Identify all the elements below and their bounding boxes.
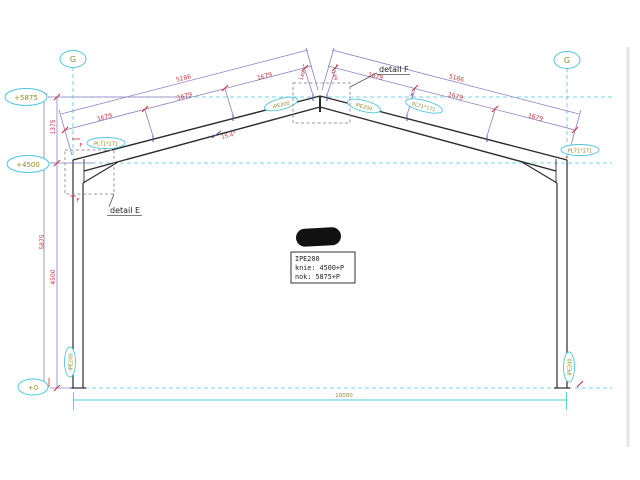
redaction-blob (296, 227, 342, 247)
grid-marker-left: G (70, 55, 76, 64)
ext-left-apex (306, 48, 318, 90)
left-column (70, 159, 118, 388)
column-label-right-group: IPE200 (564, 352, 575, 382)
info-box: IPE200 knie: 4500+P nok: 5875+P (291, 252, 355, 283)
ext-purlin (487, 110, 495, 136)
dim-rafter-segment: 1679 (527, 112, 544, 123)
ext-purlin (225, 89, 233, 115)
dim-apex-segment: 149 (299, 70, 308, 81)
apex-plate-label-group: PL71*171 (404, 96, 444, 116)
left-haunch (83, 162, 118, 183)
portal-frame-elevation: 5875 1375 4500 5186 5186 1679 1679 1679 … (0, 0, 640, 480)
level-knee: +4500 (16, 161, 40, 169)
grid-markers: G G (60, 51, 580, 69)
span-dimension: 10000 (74, 392, 567, 410)
dim-knee-height: 4500 (50, 269, 57, 284)
detail-f-label: detail F (379, 65, 409, 74)
detail-f-box (293, 83, 350, 123)
right-haunch (522, 162, 557, 183)
dim-upper-height: 1375 (50, 119, 57, 134)
dim-rafter-segment: 1679 (447, 91, 464, 102)
detail-e-box (65, 150, 114, 194)
tick (577, 381, 583, 387)
dim-rafter-segment: 1679 (96, 112, 113, 123)
right-rafter-bottom-flange (320, 107, 556, 171)
level-base: +0 (28, 384, 38, 392)
knee-plate-label-left: PL71*171 (94, 142, 118, 148)
right-column (522, 159, 570, 388)
column-label-left-group: IPE200 (65, 347, 76, 377)
dim-ticks (41, 65, 583, 391)
dim-rafter-segment: 1679 (176, 91, 193, 102)
knee-plate-label-right: PL71*171 (568, 149, 592, 155)
grid-marker-right: G (564, 56, 570, 65)
rafter-label-right-group: IPE200 (346, 96, 382, 115)
detail-e-label: detail E (110, 206, 140, 215)
info-line-1: IPE200 (295, 255, 320, 263)
dim-rafter-segment: 1679 (256, 71, 273, 82)
weld-mark: F (79, 143, 82, 149)
weld-mark: F (565, 156, 568, 162)
info-line-3: nok: 5875+P (295, 273, 340, 281)
ext-purlin (145, 110, 153, 136)
dim-total-height: 5875 (39, 234, 46, 249)
ext-left-knee (59, 110, 72, 155)
info-line-2: knie: 4500+P (295, 264, 344, 272)
column-label-left: IPE200 (69, 353, 75, 370)
level-top: +5875 (14, 94, 38, 102)
cad-drawing-viewport[interactable]: 5875 1375 4500 5186 5186 1679 1679 1679 … (0, 0, 640, 480)
column-label-right: IPE200 (568, 358, 574, 375)
span-dim-text: 10000 (335, 393, 353, 399)
weld-mark: F (76, 198, 79, 204)
ext-right-apex (322, 48, 334, 90)
dim-apex-segment: 149 (330, 70, 339, 81)
